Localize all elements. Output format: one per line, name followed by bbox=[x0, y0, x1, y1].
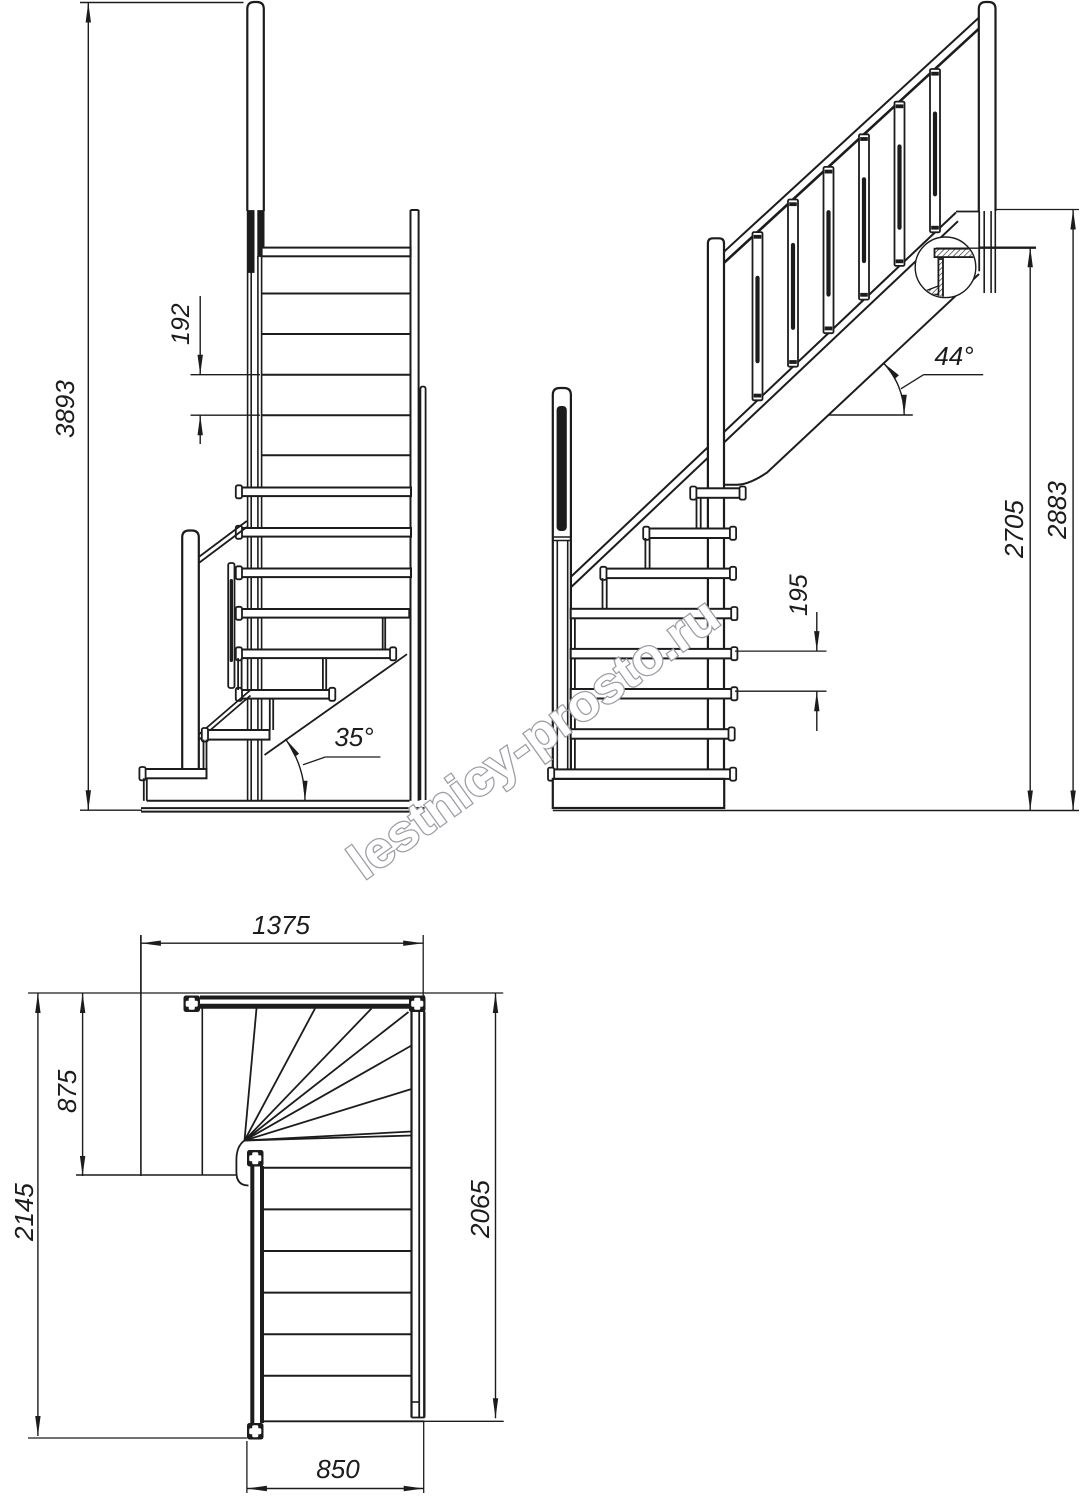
svg-text:1375: 1375 bbox=[252, 910, 310, 940]
svg-text:44°: 44° bbox=[934, 341, 973, 371]
svg-text:2883: 2883 bbox=[1042, 481, 1072, 540]
svg-text:850: 850 bbox=[316, 1454, 360, 1484]
svg-text:35°: 35° bbox=[334, 722, 373, 752]
svg-text:192: 192 bbox=[167, 303, 195, 345]
svg-text:2145: 2145 bbox=[9, 1183, 39, 1242]
svg-text:195: 195 bbox=[785, 574, 813, 616]
svg-text:2065: 2065 bbox=[465, 1180, 495, 1239]
svg-text:2705: 2705 bbox=[999, 500, 1029, 559]
svg-text:875: 875 bbox=[52, 1069, 82, 1113]
svg-text:3893: 3893 bbox=[50, 380, 80, 438]
